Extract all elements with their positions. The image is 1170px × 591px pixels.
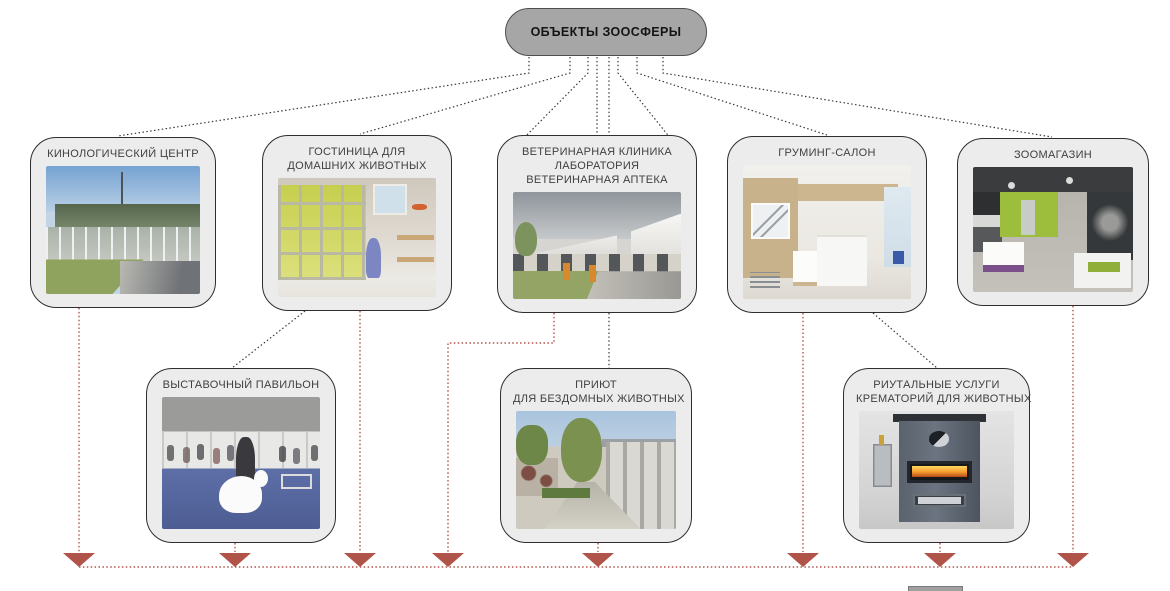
outdoor-runs-fence-shape xyxy=(46,227,200,262)
pet-crematorium-furnace-photo xyxy=(859,411,1014,529)
node-animal-shelter: ПРИЮТ ДЛЯ БЕЗДОМНЫХ ЖИВОТНЫХ xyxy=(500,368,692,543)
furnace-emblem-shape xyxy=(929,431,949,446)
bench-shape xyxy=(750,272,780,288)
node-title: КИНОЛОГИЧЕСКИЙ ЦЕНТР xyxy=(43,147,203,161)
ring-fence-shape xyxy=(281,474,313,490)
control-panel-shape xyxy=(873,444,892,486)
node-grooming-salon: ГРУМИНГ-САЛОН xyxy=(727,136,927,313)
furnace-vent-shape xyxy=(918,497,961,504)
shrub-shape xyxy=(542,488,590,499)
node-title: ГРУМИНГ-САЛОН xyxy=(740,146,914,160)
node-pet-hotel: ГОСТИНИЦА ДЛЯ ДОМАШНИХ ЖИВОТНЫХ xyxy=(262,135,452,311)
node-pet-shop: ЗООМАГАЗИН xyxy=(957,138,1149,306)
root-node: ОБЪЕКТЫ ЗООСФЕРЫ xyxy=(505,8,707,56)
signpost-shape xyxy=(563,263,570,280)
lamp-post-shape xyxy=(121,172,123,207)
flow-arrow-shelter xyxy=(582,553,614,567)
node-pet-crematorium: РИУТАЛЬНЫЕ УСЛУГИ КРЕМАТОРИЙ ДЛЯ ЖИВОТНЫ… xyxy=(843,368,1030,543)
doorway-shape xyxy=(1021,200,1035,235)
display-stand-shape xyxy=(983,242,1025,272)
pet-kennel-lockers-shape xyxy=(278,185,366,280)
pavement-shape xyxy=(120,261,200,294)
tree-shape xyxy=(515,222,537,256)
walkway-shape xyxy=(587,271,681,299)
dog-training-center-photo xyxy=(46,166,200,294)
node-title: ВЫСТАВОЧНЫЙ ПАВИЛЬОН xyxy=(159,378,323,392)
dog-photo-wall-shape xyxy=(1087,192,1133,259)
edge-root-grooming xyxy=(637,57,827,135)
staff-person-shape xyxy=(366,238,380,278)
pet-shop-interior-photo xyxy=(973,167,1133,292)
fire-glow-shape xyxy=(912,466,966,477)
tree-shape xyxy=(561,418,603,482)
reception-counter-shape xyxy=(817,235,867,286)
clinic-roof-shape xyxy=(523,226,617,256)
node-title: ГОСТИНИЦА ДЛЯ ДОМАШНИХ ЖИВОТНЫХ xyxy=(275,145,439,173)
pet-hotel-interior-photo xyxy=(278,178,436,297)
flow-arrow-pet-hotel xyxy=(344,553,376,567)
clinic-facade-shape xyxy=(513,254,681,272)
blue-seat-shape xyxy=(893,251,905,264)
flow-arrow-crematorium xyxy=(924,553,956,567)
edge-root-pet-shop xyxy=(663,57,1052,137)
tree-shape xyxy=(516,425,548,465)
pet-bowl-shape xyxy=(412,204,426,210)
flow-arrow-pet-shop xyxy=(1057,553,1089,567)
node-title: ПРИЮТ ДЛЯ БЕЗДОМНЫХ ЖИВОТНЫХ xyxy=(513,378,679,406)
node-title: ВЕТЕРИНАРНАЯ КЛИНИКА ЛАБОРАТОРИЯ ВЕТЕРИН… xyxy=(510,145,684,187)
green-sign-shape xyxy=(1088,262,1120,272)
white-poodle-shape xyxy=(254,470,268,487)
clinic-roof-shape xyxy=(631,214,681,257)
root-node-label: ОБЪЕКТЫ ЗООСФЕРЫ xyxy=(531,25,682,39)
spectators-shape xyxy=(167,445,174,461)
edge-root-cynology xyxy=(118,57,529,136)
grooming-salon-interior-photo xyxy=(743,165,911,299)
node-title: РИУТАЛЬНЫЕ УСЛУГИ КРЕМАТОРИЙ ДЛЯ ЖИВОТНЫ… xyxy=(856,378,1017,406)
kennel-building-shape xyxy=(55,204,200,228)
edge-grooming-crematorium xyxy=(873,313,937,368)
node-title: ЗООМАГАЗИН xyxy=(970,148,1136,162)
node-vet-clinic: ВЕТЕРИНАРНАЯ КЛИНИКА ЛАБОРАТОРИЯ ВЕТЕРИН… xyxy=(497,135,697,313)
dog-show-photo xyxy=(162,397,320,529)
flow-arrow-exhibition xyxy=(219,553,251,567)
flow-arrow-vet xyxy=(432,553,464,567)
gas-pipe-shape xyxy=(879,435,884,446)
animal-shelter-yard-photo xyxy=(516,411,676,529)
node-cynology-center: КИНОЛОГИЧЕСКИЙ ЦЕНТР xyxy=(30,137,216,308)
node-exhibition-pavilion: ВЫСТАВОЧНЫЙ ПАВИЛЬОН xyxy=(146,368,336,543)
pendant-lamps-shape xyxy=(1008,182,1015,189)
edge-hotel-exhibition xyxy=(232,311,305,368)
zoosphere-objects-diagram: ОБЪЕКТЫ ЗООСФЕРЫ КИНОЛОГИЧЕСКИЙ ЦЕНТР ГО… xyxy=(0,0,1170,591)
flow-arrow-cynology xyxy=(63,553,95,567)
window-shape xyxy=(373,184,407,215)
dog-picture-frame-shape xyxy=(753,205,788,237)
shelf-shape xyxy=(397,235,435,240)
vet-clinic-building-photo xyxy=(513,192,681,299)
cropped-gray-bar xyxy=(908,586,963,591)
flow-arrow-grooming xyxy=(787,553,819,567)
edge-root-vet-left xyxy=(523,57,588,139)
